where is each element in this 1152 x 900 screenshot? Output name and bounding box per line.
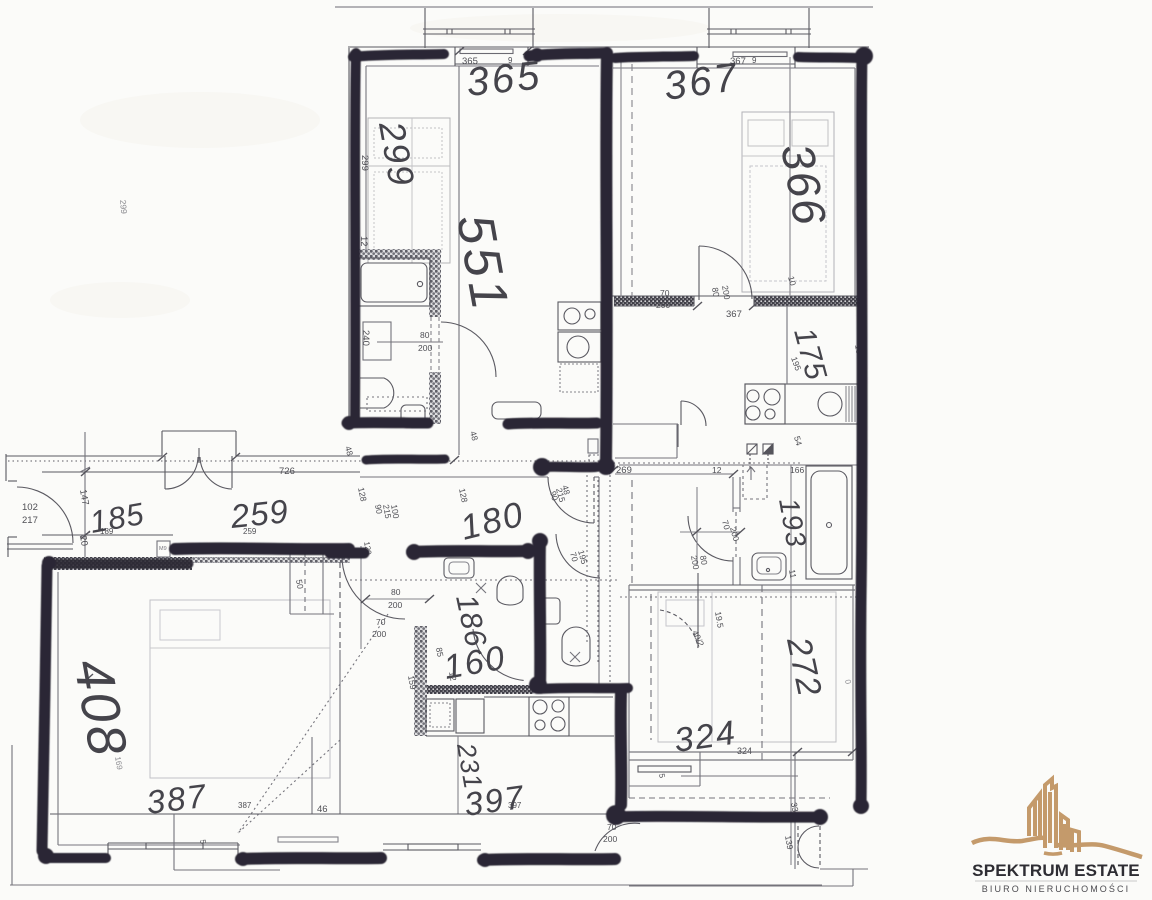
- svg-text:166: 166: [790, 465, 804, 475]
- svg-text:12: 12: [712, 465, 722, 475]
- svg-text:387: 387: [144, 777, 209, 821]
- svg-text:80: 80: [420, 330, 430, 340]
- svg-text:80: 80: [391, 587, 401, 597]
- svg-text:SPEKTRUM ESTATE: SPEKTRUM ESTATE: [972, 861, 1140, 880]
- svg-text:80: 80: [710, 287, 722, 298]
- svg-text:102: 102: [22, 502, 38, 513]
- svg-text:50: 50: [294, 579, 306, 590]
- svg-text:M9: M9: [159, 546, 167, 552]
- svg-text:299: 299: [118, 199, 129, 214]
- svg-text:726: 726: [279, 466, 295, 477]
- svg-text:387: 387: [238, 801, 252, 810]
- svg-text:240: 240: [360, 330, 371, 346]
- svg-text:200: 200: [603, 834, 617, 844]
- svg-text:46: 46: [317, 804, 328, 815]
- svg-text:200: 200: [372, 629, 386, 639]
- svg-text:200: 200: [418, 343, 432, 353]
- svg-text:324: 324: [737, 746, 752, 756]
- svg-text:200: 200: [656, 300, 670, 310]
- svg-text:367: 367: [726, 309, 742, 320]
- svg-text:200: 200: [388, 600, 402, 610]
- svg-text:70: 70: [660, 288, 670, 298]
- svg-text:269: 269: [616, 465, 632, 476]
- svg-text:299: 299: [359, 155, 370, 171]
- svg-text:217: 217: [22, 515, 38, 526]
- svg-text:70: 70: [376, 617, 386, 627]
- svg-text:9: 9: [752, 56, 757, 65]
- svg-text:BIURO NIERUCHOMOŚCI: BIURO NIERUCHOMOŚCI: [982, 883, 1130, 894]
- svg-text:259: 259: [228, 492, 291, 535]
- svg-text:33: 33: [789, 802, 801, 813]
- svg-text:20: 20: [77, 535, 90, 547]
- svg-text:365: 365: [464, 53, 544, 105]
